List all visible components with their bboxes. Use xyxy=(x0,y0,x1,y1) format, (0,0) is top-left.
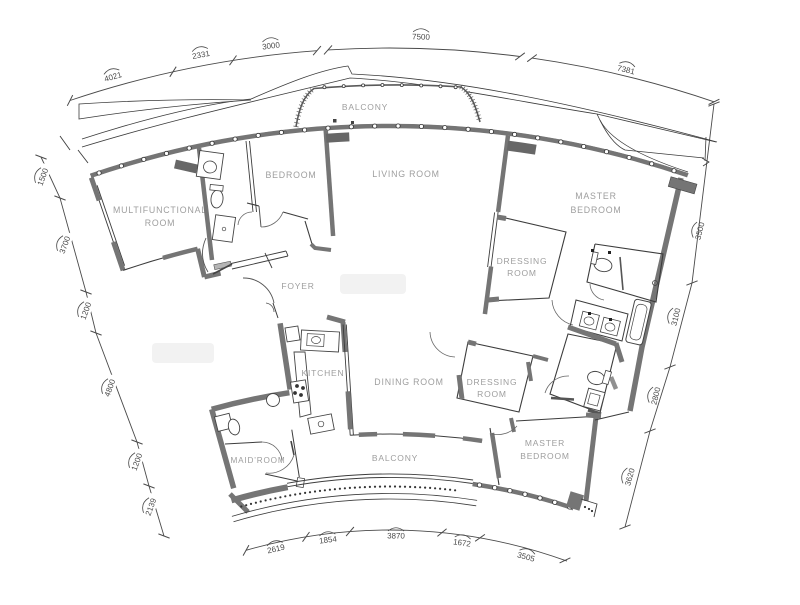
svg-text:7500: 7500 xyxy=(412,32,431,42)
svg-text:BEDROOM: BEDROOM xyxy=(570,205,621,215)
svg-text:BALCONY: BALCONY xyxy=(342,102,388,112)
svg-text:MASTER: MASTER xyxy=(525,438,565,448)
svg-text:BEDROOM: BEDROOM xyxy=(520,451,570,461)
svg-text:BALCONY: BALCONY xyxy=(372,453,418,463)
svg-text:MULTIFUNCTIONAL: MULTIFUNCTIONAL xyxy=(113,205,207,215)
svg-text:DRESSING: DRESSING xyxy=(497,256,548,266)
svg-text:LIVING ROOM: LIVING ROOM xyxy=(372,169,439,179)
svg-text:BEDROOM: BEDROOM xyxy=(265,170,316,180)
svg-text:DINING ROOM: DINING ROOM xyxy=(374,377,443,387)
svg-text:KITCHEN: KITCHEN xyxy=(302,368,345,378)
svg-text:ROOM: ROOM xyxy=(477,389,507,399)
svg-text:FOYER: FOYER xyxy=(281,281,314,291)
svg-text:MAID’ROOM: MAID’ROOM xyxy=(231,456,286,465)
svg-text:3870: 3870 xyxy=(387,531,405,540)
svg-text:ROOM: ROOM xyxy=(145,218,176,228)
svg-text:ROOM: ROOM xyxy=(507,268,537,278)
svg-text:MASTER: MASTER xyxy=(575,191,616,201)
svg-text:DRESSING: DRESSING xyxy=(467,377,518,387)
